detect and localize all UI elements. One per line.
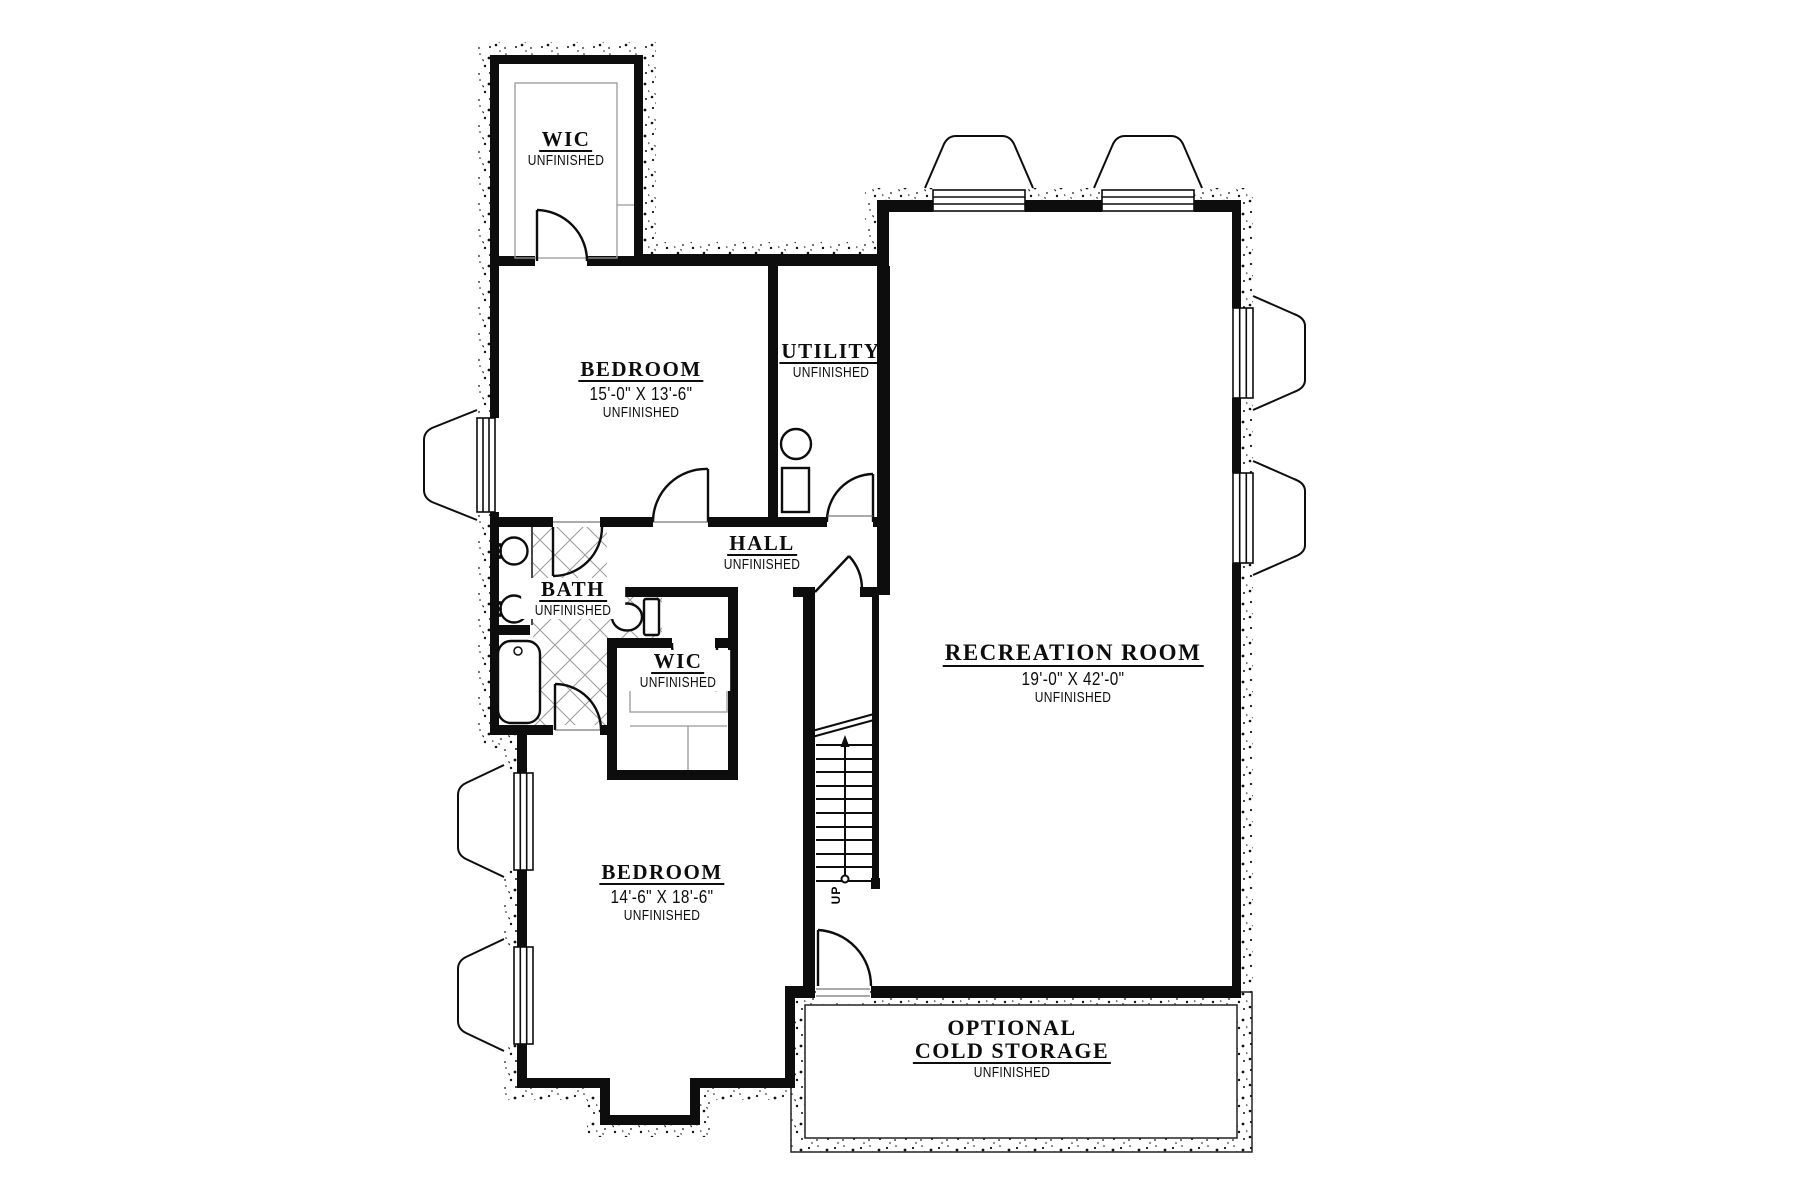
rec-room-top-window-1 xyxy=(933,190,1025,211)
furnace xyxy=(782,468,809,512)
utility-door xyxy=(827,474,873,522)
sink-1 xyxy=(501,538,528,565)
up-arrow-head xyxy=(841,735,850,747)
label-hall: HALL UNFINISHED xyxy=(714,532,810,573)
water-heater xyxy=(781,429,811,459)
floor-plan-page: WIC UNFINISHED BEDROOM 15'-0" X 13'-6" U… xyxy=(0,0,1800,1200)
label-bedroom-upper: BEDROOM 15'-0" X 13'-6" UNFINISHED xyxy=(578,358,703,421)
label-utility: UTILITY UNFINISHED xyxy=(779,340,882,381)
hall-rec-door xyxy=(815,556,862,592)
label-bedroom-lower: BEDROOM 14'-6" X 18'-6" UNFINISHED xyxy=(599,861,724,924)
arrow-origin xyxy=(842,876,849,883)
floor-plan-drawing xyxy=(0,0,1800,1200)
rec-room-right-window-2 xyxy=(1233,473,1253,563)
bedroom-lower-window-1 xyxy=(514,773,533,870)
rec-room-right-window-1 xyxy=(1233,308,1253,398)
rec-room-top-window-2 xyxy=(1102,190,1194,211)
staircase xyxy=(812,714,874,883)
bedroom-lower-window-2 xyxy=(514,947,533,1044)
label-recreation-room: RECREATION ROOM 19'-0" X 42'-0" UNFINISH… xyxy=(943,641,1204,706)
wic-upper-door xyxy=(537,210,587,261)
bedroom-upper-window xyxy=(477,418,495,512)
label-wic-lower: WIC UNFINISHED xyxy=(626,650,730,691)
bedroom-upper-door xyxy=(653,469,708,522)
cold-storage-door xyxy=(818,930,871,986)
tub-drain xyxy=(514,647,522,655)
label-stairs-up: UP xyxy=(829,886,843,905)
label-bath: BATH UNFINISHED xyxy=(521,578,625,619)
label-wic-upper: WIC UNFINISHED xyxy=(518,128,614,169)
toilet-tank xyxy=(644,599,659,635)
label-cold-storage: OPTIONAL COLD STORAGE UNFINISHED xyxy=(913,1016,1111,1081)
